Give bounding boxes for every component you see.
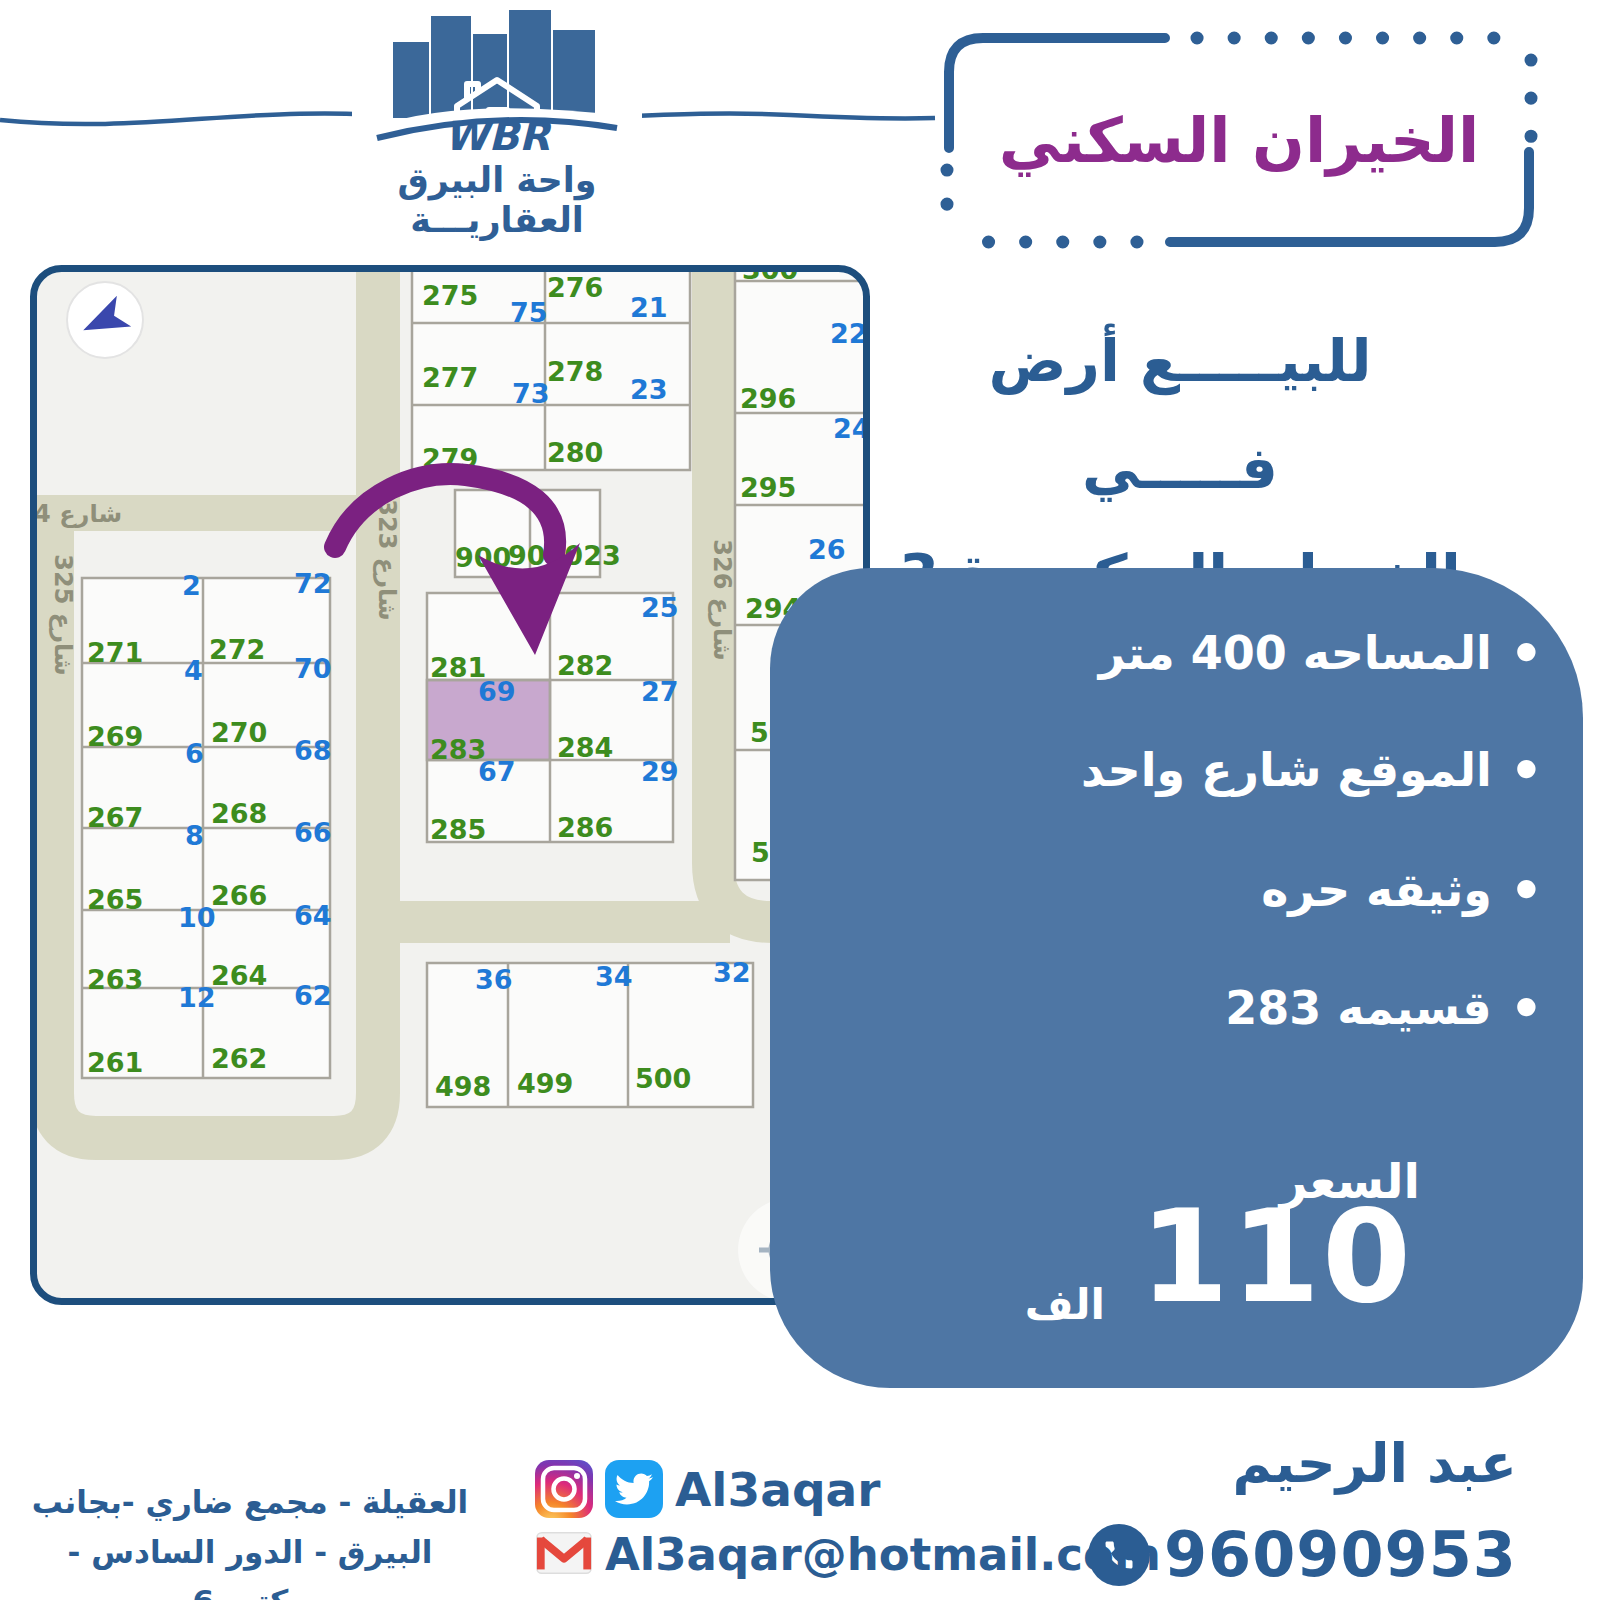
plot-number: 66	[294, 817, 332, 848]
agent-name: عبد الرحيم	[1232, 1432, 1517, 1495]
map-svg: شارع 4شارع 323شارع 325شارع 3262752767521…	[30, 265, 870, 1305]
logo-name-line1: واحة البيرق	[352, 160, 642, 200]
plot-number: 27	[641, 676, 679, 707]
plot-number: 25	[641, 592, 679, 623]
headline-line1: للبيـــــع أرض فـــــي	[895, 308, 1465, 523]
plot-number: 269	[87, 721, 143, 752]
plot-number: 499	[517, 1068, 573, 1099]
plot-number: 6	[185, 738, 204, 769]
plot-number: 8	[185, 820, 204, 851]
plot-number: 280	[547, 437, 603, 468]
plot-number: 295	[740, 472, 796, 503]
plot-number: 267	[87, 802, 143, 833]
plot-number: 69	[478, 676, 516, 707]
logo-brand-text: WBR	[444, 113, 552, 154]
plot-number: 296	[740, 383, 796, 414]
bullet-dot: •	[1510, 744, 1543, 796]
price-value: 110	[1140, 1193, 1413, 1321]
bullet-location: •الموقع شارع واحد	[1081, 743, 1543, 797]
phone-number: 96090953	[1164, 1518, 1517, 1591]
plot-number: 70	[294, 653, 332, 684]
bullet-deed: •وثيقه حره	[1261, 863, 1543, 917]
plot-map: شارع 4شارع 323شارع 325شارع 3262752767521…	[30, 265, 870, 1305]
plot-number: 21	[630, 292, 668, 323]
plot-number: 268	[211, 798, 267, 829]
title-box: الخيران السكني	[935, 26, 1543, 254]
email-address: Al3aqar@hotmail.com	[605, 1528, 1161, 1581]
social-handle: Al3aqar	[675, 1462, 880, 1517]
plot-number: 64	[294, 900, 332, 931]
bullet-dot: •	[1510, 982, 1543, 1034]
plot-number: 261	[87, 1047, 143, 1078]
company-logo: WBR واحة البيرق العقاريـــة	[352, 2, 642, 260]
plot-number: 278	[547, 356, 603, 387]
gmail-icon	[535, 1530, 593, 1580]
plot-number: 284	[557, 732, 613, 763]
plot-number: 286	[557, 812, 613, 843]
logo-name-line2: العقاريـــة	[352, 200, 642, 240]
street-label: شارع 4	[34, 500, 122, 528]
bullet-dot: •	[1510, 864, 1543, 916]
project-title: الخيران السكني	[935, 26, 1543, 254]
real-estate-flyer: { "colors": { "accent_blue": "#2b5d93", …	[0, 0, 1600, 1600]
plot-number: 262	[211, 1043, 267, 1074]
plot-number: 72	[294, 568, 332, 599]
plot-number: 22	[830, 318, 868, 349]
plot-number: 2	[182, 570, 201, 601]
plot-number: 10	[178, 902, 216, 933]
plot-number: 73	[512, 378, 550, 409]
plot-number: 498	[435, 1071, 491, 1102]
instagram-icon	[535, 1460, 593, 1518]
plot-number: 23	[630, 374, 668, 405]
plot-number: 266	[211, 880, 267, 911]
plot-number: 500	[635, 1063, 691, 1094]
plot-number: 264	[211, 960, 267, 991]
street-label: شارع 325	[49, 554, 77, 675]
address-line2: البيرق - الدور السادس - مكتب 6	[25, 1528, 475, 1600]
plot-number: 4	[184, 655, 203, 686]
address-line1: العقيلة - مجمع ضاري -بجانب	[25, 1478, 475, 1528]
bullet-dot: •	[1510, 627, 1543, 679]
twitter-icon	[605, 1460, 663, 1518]
social-block: Al3aqar Al3aqar@hotmail.com	[535, 1460, 1161, 1591]
bullet-area: •المساحه 400 متر	[1099, 626, 1543, 680]
price-unit: الف	[1025, 1280, 1105, 1329]
plot-number: 272	[209, 634, 265, 665]
plot-number: 275	[422, 280, 478, 311]
plot-number: 32	[713, 957, 751, 988]
logo-skyline-icon: WBR	[371, 2, 623, 154]
street-label: شارع 326	[708, 539, 736, 660]
plot-number: 75	[510, 297, 548, 328]
plot-number: 62	[294, 980, 332, 1011]
plot-number: 270	[211, 717, 267, 748]
plot-number: 26	[808, 534, 846, 565]
social-row: Al3aqar	[535, 1460, 1161, 1518]
plot-number: 277	[422, 362, 478, 393]
plot-number: 282	[557, 650, 613, 681]
plot-number: 265	[87, 884, 143, 915]
plot-number: 68	[294, 735, 332, 766]
plot-number: 36	[475, 964, 513, 995]
email-row: Al3aqar@hotmail.com	[535, 1528, 1161, 1581]
plot-number: 271	[87, 637, 143, 668]
plot-number: 12	[178, 982, 216, 1013]
bullet-plot-number: •قسيمه 283	[1225, 981, 1543, 1035]
plot-number: 29	[641, 756, 679, 787]
street-label: شارع 323	[373, 499, 401, 620]
plot-number: 263	[87, 964, 143, 995]
plot-number: 276	[547, 272, 603, 303]
plot-number: 67	[478, 756, 516, 787]
plot-number: 285	[430, 814, 486, 845]
details-panel: •المساحه 400 متر •الموقع شارع واحد •وثيق…	[770, 568, 1583, 1388]
plot-number: 34	[595, 961, 633, 992]
office-address: العقيلة - مجمع ضاري -بجانب البيرق - الدو…	[25, 1478, 475, 1600]
